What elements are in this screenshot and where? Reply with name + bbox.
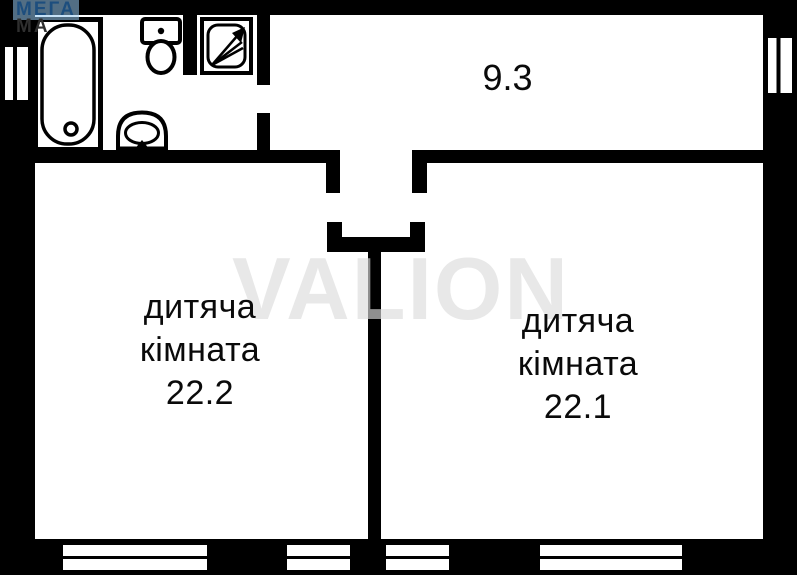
window-right-wall	[768, 38, 792, 93]
wall-vestibule-jamb-left	[326, 163, 340, 193]
agency-logo: МЕГА МА	[13, 2, 79, 34]
wall-bathroom-right-upper	[257, 15, 270, 85]
floor-plan: 9.3 дитяча кімната 22.2 дитяча кімната 2…	[0, 0, 797, 575]
room2-name-line2: кімната	[483, 343, 673, 386]
room1-name-line2: кімната	[105, 329, 295, 372]
window-room1-small	[287, 545, 350, 570]
window-room1-wide	[63, 545, 207, 570]
room1-area: 22.2	[105, 372, 295, 415]
toilet-icon	[140, 15, 182, 75]
room2-area: 22.1	[483, 386, 673, 429]
wall-vestibule-jamb-right	[412, 163, 427, 193]
agency-logo-line2: МА	[13, 19, 79, 34]
room1-name-line1: дитяча	[105, 286, 295, 329]
wall-hallway-bottom-right	[412, 150, 763, 163]
shower-icon	[200, 17, 253, 75]
window-room2-wide	[540, 545, 682, 570]
room2-name-line1: дитяча	[483, 300, 673, 343]
room1-label: дитяча кімната 22.2	[105, 286, 295, 415]
hallway-area-label: 9.3	[455, 57, 560, 99]
window-room2-small	[386, 545, 449, 570]
wall-top	[0, 0, 797, 15]
wall-toilet-shower-divider	[183, 15, 197, 75]
bathtub-icon	[33, 17, 103, 152]
window-left-wall	[5, 47, 28, 100]
sink-icon	[115, 110, 169, 150]
room2-label: дитяча кімната 22.1	[483, 300, 673, 429]
